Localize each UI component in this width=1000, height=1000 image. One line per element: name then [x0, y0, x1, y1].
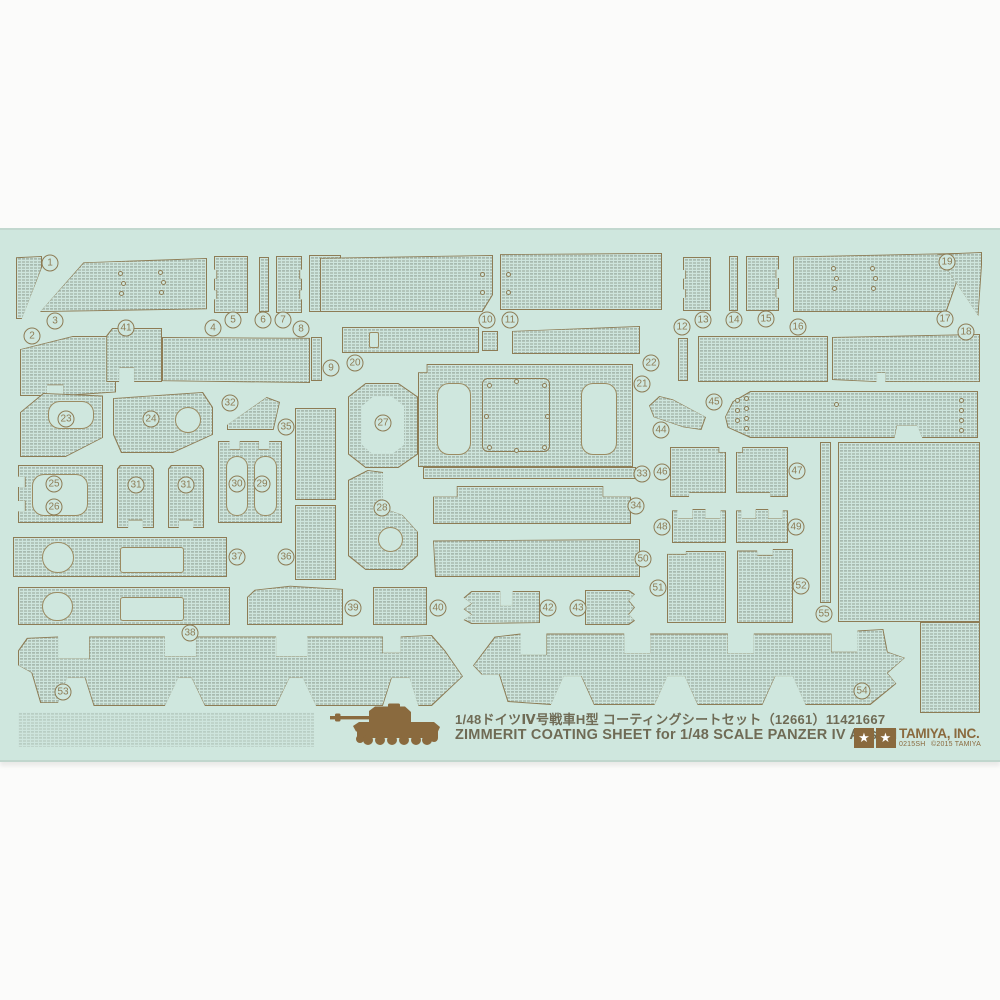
part-35 — [295, 408, 336, 500]
part-number-17: 17 — [937, 311, 954, 328]
part-number-8: 8 — [293, 321, 310, 338]
spare-block — [920, 622, 980, 713]
part-number-19: 19 — [939, 254, 956, 271]
part-31a-texture — [118, 466, 153, 527]
part-number-29: 29 — [254, 476, 271, 493]
part-7-texture — [277, 257, 301, 312]
part-35-texture — [296, 409, 335, 499]
rivet-hole — [735, 408, 740, 413]
rivet-hole — [487, 445, 492, 450]
part-number-25: 25 — [46, 476, 63, 493]
sheet-code: 0215SH — [899, 741, 926, 748]
part-9-texture — [312, 338, 321, 380]
part-number-14: 14 — [726, 312, 743, 329]
rivet-hole — [744, 426, 749, 431]
part-number-30: 30 — [229, 476, 246, 493]
part-39-texture — [248, 586, 342, 624]
part-36 — [295, 505, 336, 580]
part-number-39: 39 — [345, 600, 362, 617]
rivet-hole — [118, 271, 123, 276]
part-9 — [311, 337, 322, 381]
panzer-iv-silhouette-icon — [330, 703, 446, 749]
part-15-texture — [747, 257, 778, 310]
rivet-hole — [959, 408, 964, 413]
part-number-6: 6 — [255, 312, 272, 329]
rivet-hole — [834, 276, 839, 281]
part-14-texture — [730, 257, 737, 310]
rivet-hole — [121, 281, 126, 286]
part-number-3: 3 — [47, 313, 64, 330]
part-50 — [433, 539, 640, 577]
part-13-texture — [684, 258, 710, 310]
part-number-18: 18 — [958, 324, 975, 341]
rivet-hole — [487, 383, 492, 388]
part-number-20: 20 — [347, 355, 364, 372]
spare-block — [838, 442, 980, 622]
part-20 — [482, 331, 498, 351]
part-number-23: 23 — [58, 411, 75, 428]
part-47 — [736, 447, 788, 497]
part-number-51: 51 — [650, 580, 667, 597]
part-14 — [729, 256, 738, 311]
spare-block-texture — [921, 623, 979, 712]
rivet-hole — [506, 272, 511, 277]
part-21-turret-scribed-panel — [482, 378, 550, 452]
part-38-cutout — [120, 597, 184, 621]
rivet-hole — [735, 398, 740, 403]
part-46 — [670, 447, 726, 497]
part-number-40: 40 — [430, 600, 447, 617]
offcut-strip-texture — [18, 712, 314, 747]
part-number-37: 37 — [229, 549, 246, 566]
part-46-texture — [671, 448, 725, 496]
part-20-cutout — [369, 332, 379, 348]
part-31b-texture — [169, 466, 203, 527]
part-number-11: 11 — [502, 312, 519, 329]
part-11 — [500, 253, 662, 310]
product-photo: 1234567891011121314151617181920212223242… — [0, 0, 1000, 1000]
part-17-18-texture — [833, 335, 979, 383]
part-55-texture — [821, 443, 830, 602]
part-number-7: 7 — [275, 312, 292, 329]
part-number-45: 45 — [706, 394, 723, 411]
part-55 — [820, 442, 831, 603]
rivet-hole — [158, 270, 163, 275]
part-number-16: 16 — [790, 319, 807, 336]
spare-block-texture — [839, 443, 979, 621]
part-38-cutout — [42, 592, 73, 621]
part-4 — [214, 256, 248, 313]
part-6 — [259, 257, 269, 312]
part-34-texture — [434, 487, 630, 523]
copyright: ©2015 TAMIYA — [931, 741, 981, 748]
part-11-texture — [501, 254, 661, 309]
part-number-33: 33 — [634, 466, 651, 483]
rivet-hole — [542, 445, 547, 450]
part-number-12: 12 — [674, 319, 691, 336]
rivet-hole — [959, 418, 964, 423]
part-4-texture — [215, 257, 247, 312]
part-20-texture — [483, 332, 497, 350]
rivet-hole — [959, 428, 964, 433]
part-number-34: 34 — [628, 498, 645, 515]
part-21-turret-cutout — [581, 383, 617, 455]
part-number-48: 48 — [654, 519, 671, 536]
rivet-hole — [484, 414, 489, 419]
part-number-55: 55 — [816, 606, 833, 623]
part-number-47: 47 — [789, 463, 806, 480]
title-english: ZIMMERIT COATING SHEET for 1/48 SCALE PA… — [455, 727, 897, 743]
tamiya-logo-star-left-icon: ★ — [854, 728, 874, 748]
rivet-hole — [831, 266, 836, 271]
part-33-texture — [424, 468, 635, 478]
part-number-41: 41 — [118, 320, 135, 337]
part-13b-texture — [699, 337, 827, 381]
part-number-49: 49 — [788, 519, 805, 536]
rivet-hole — [871, 286, 876, 291]
offcut-strip — [18, 712, 314, 747]
part-number-31: 31 — [178, 477, 195, 494]
part-50-texture — [434, 540, 639, 576]
part-number-26: 26 — [46, 499, 63, 516]
part-number-5: 5 — [225, 312, 242, 329]
part-31a — [117, 465, 154, 528]
part-number-35: 35 — [278, 419, 295, 436]
part-number-53: 53 — [55, 684, 72, 701]
rivet-hole — [735, 418, 740, 423]
part-51-texture — [668, 552, 725, 622]
part-39 — [247, 585, 343, 625]
part-number-32: 32 — [222, 395, 239, 412]
part-10-texture — [321, 256, 492, 311]
part-number-1: 1 — [42, 255, 59, 272]
part-7 — [276, 256, 302, 313]
part-10 — [320, 255, 493, 312]
part-24-cutout — [175, 407, 201, 433]
part-12-texture — [679, 339, 687, 380]
part-52-texture — [738, 550, 792, 622]
rivet-hole — [834, 402, 839, 407]
part-number-4: 4 — [205, 320, 222, 337]
rivet-hole — [159, 290, 164, 295]
part-number-54: 54 — [854, 683, 871, 700]
part-43-texture — [586, 591, 634, 624]
part-13 — [683, 257, 711, 311]
rivet-hole — [545, 414, 550, 419]
part-6-texture — [260, 258, 268, 311]
part-45-texture — [726, 392, 977, 437]
part-33 — [423, 467, 636, 479]
part-21-turret-cutout — [437, 383, 471, 455]
rivet-hole — [514, 448, 519, 453]
part-37-cutout — [42, 542, 74, 573]
part-31b — [168, 465, 204, 528]
part-number-46: 46 — [654, 464, 671, 481]
part-41-texture — [163, 338, 309, 382]
part-number-50: 50 — [635, 551, 652, 568]
part-number-52: 52 — [793, 578, 810, 595]
brand-name: TAMIYA, INC. — [899, 726, 979, 741]
part-20-texture — [343, 328, 478, 352]
part-number-38: 38 — [182, 625, 199, 642]
part-number-42: 42 — [540, 600, 557, 617]
part-22-texture — [513, 327, 639, 353]
part-number-15: 15 — [758, 311, 775, 328]
tamiya-logo-star-right-icon: ★ — [876, 728, 896, 748]
part-number-27: 27 — [375, 415, 392, 432]
part-20 — [342, 327, 479, 353]
part-43 — [585, 590, 635, 625]
part-number-13: 13 — [695, 312, 712, 329]
part-number-28: 28 — [374, 500, 391, 517]
part-number-21: 21 — [634, 376, 651, 393]
part-17-18 — [832, 334, 980, 384]
rivet-hole — [542, 383, 547, 388]
part-12 — [678, 338, 688, 381]
title-japanese: 1/48ドイツⅣ号戦車H型 コーティングシートセット（12661）1142166… — [455, 709, 885, 728]
part-34 — [433, 486, 631, 524]
part-number-31: 31 — [128, 477, 145, 494]
part-13b — [698, 336, 828, 382]
part-number-10: 10 — [479, 312, 496, 329]
rivet-hole — [959, 398, 964, 403]
rivet-hole — [744, 416, 749, 421]
part-52 — [737, 549, 793, 623]
part-number-9: 9 — [323, 360, 340, 377]
rivet-hole — [119, 291, 124, 296]
rivet-hole — [506, 290, 511, 295]
rivet-hole — [161, 280, 166, 285]
part-41 — [162, 337, 310, 383]
rivet-hole — [744, 406, 749, 411]
rivet-hole — [832, 286, 837, 291]
part-47-texture — [737, 448, 787, 496]
part-number-24: 24 — [143, 411, 160, 428]
part-51 — [667, 551, 726, 623]
part-40-texture — [374, 588, 426, 624]
rivet-hole — [744, 396, 749, 401]
part-15 — [746, 256, 779, 311]
part-2-texture — [21, 337, 115, 395]
part-36-texture — [296, 506, 335, 579]
rivet-hole — [873, 276, 878, 281]
rivet-hole — [480, 272, 485, 277]
part-16-texture — [794, 254, 957, 311]
part-number-43: 43 — [570, 600, 587, 617]
part-number-22: 22 — [643, 355, 660, 372]
part-40 — [373, 587, 427, 625]
part-number-44: 44 — [653, 422, 670, 439]
part-28-cutout — [378, 527, 403, 552]
rivet-hole — [480, 290, 485, 295]
part-37-cutout — [120, 547, 184, 573]
rivet-hole — [514, 379, 519, 384]
rivet-hole — [870, 266, 875, 271]
part-number-36: 36 — [278, 549, 295, 566]
part-number-2: 2 — [24, 328, 41, 345]
part-16 — [793, 253, 958, 312]
part-45 — [725, 391, 978, 438]
